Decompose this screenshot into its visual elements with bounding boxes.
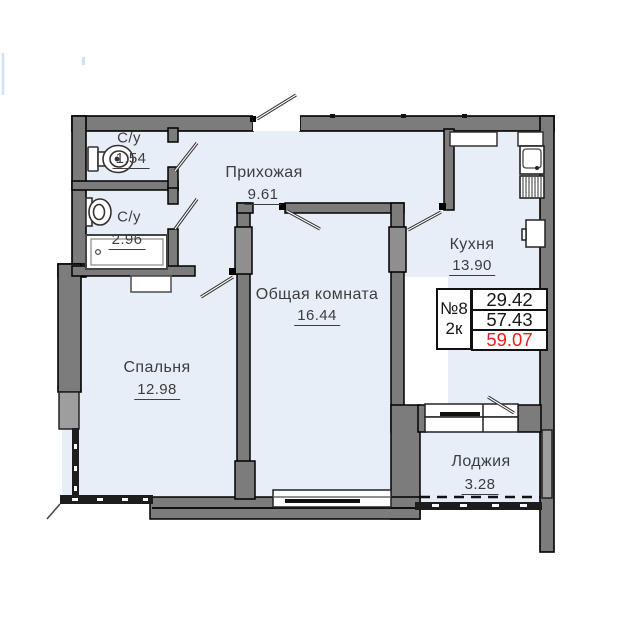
- area-value-2: 57.43: [472, 310, 547, 330]
- unit-number-cell: №8 2к: [437, 289, 471, 349]
- area-value-1: 29.42: [472, 289, 547, 310]
- room-area-hallway: 9.61: [245, 187, 282, 205]
- vent-shaft-box: [131, 276, 171, 292]
- room-area-su2: 2.96: [109, 232, 146, 250]
- room-label-su2: С/у: [117, 210, 141, 225]
- stove-icon: [520, 176, 544, 198]
- sink-icon: [86, 198, 111, 226]
- kitchen-cabinets: [450, 132, 543, 146]
- room-area-common: 16.44: [294, 308, 340, 326]
- common-room-window: [273, 490, 391, 507]
- room-label-bedroom: Спальня: [123, 360, 190, 376]
- floor-plan: С/у 1.54 С/у 2.96 Прихожая 9.61 Кухня 13…: [0, 0, 621, 621]
- unit-type: 2к: [446, 320, 463, 338]
- room-label-su1: С/у: [117, 131, 141, 146]
- room-area-su1: 1.54: [113, 151, 150, 169]
- room-label-common: Общая комната: [256, 287, 379, 303]
- fridge-icon: [522, 220, 545, 247]
- area-value-total: 59.07: [472, 330, 547, 350]
- room-label-hallway: Прихожая: [225, 165, 302, 181]
- room-area-loggia: 3.28: [462, 477, 499, 495]
- room-label-loggia: Лоджия: [451, 454, 510, 470]
- kitchen-sink-icon: [520, 146, 544, 174]
- room-label-kitchen: Кухня: [450, 237, 495, 253]
- room-area-bedroom: 12.98: [134, 382, 180, 400]
- edge-artifact: [3, 53, 85, 95]
- unit-number: №8: [440, 300, 468, 318]
- room-area-kitchen: 13.90: [449, 258, 495, 276]
